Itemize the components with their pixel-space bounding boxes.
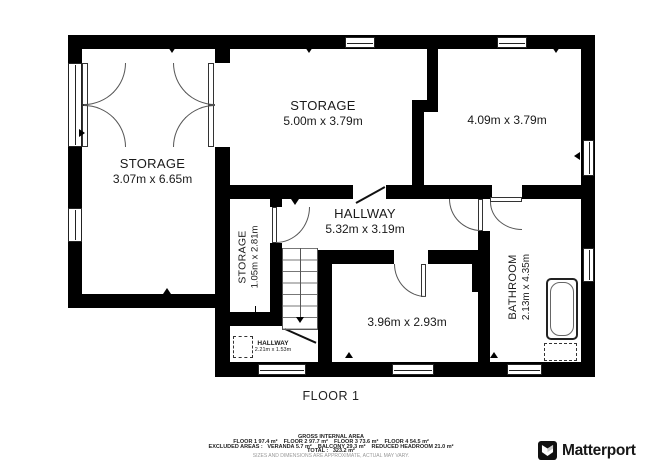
- room-name: STORAGE: [80, 156, 225, 172]
- window: [68, 208, 82, 242]
- wall-closet-right-lower: [270, 243, 282, 312]
- room-label-storage-left: STORAGE 3.07m x 6.65m: [80, 156, 225, 187]
- window: [583, 140, 594, 176]
- door-swing: [449, 199, 481, 231]
- tick-mark: [163, 288, 171, 294]
- room-label-room-bottom: 3.96m x 2.93m: [336, 315, 478, 330]
- room-name: STORAGE: [237, 200, 250, 315]
- wall-hallway-top-a: [230, 185, 353, 199]
- matterport-logo-text: Matterport: [562, 442, 636, 460]
- wall-bathroom-top: [522, 185, 581, 199]
- window: [345, 37, 375, 48]
- room-label-top-right: 4.09m x 3.79m: [432, 113, 582, 128]
- door-swing: [394, 264, 426, 297]
- tick-mark: [291, 199, 299, 205]
- room-label-hallway: HALLWAY 5.32m x 3.19m: [290, 206, 440, 237]
- tick-mark: [490, 352, 498, 358]
- room-dimensions: 2.13m x 4.35m: [521, 227, 534, 347]
- room-name: BATHROOM: [507, 227, 521, 347]
- room-dimensions: 5.32m x 3.19m: [290, 222, 440, 237]
- room-name: HALLWAY: [240, 340, 306, 347]
- room-dimensions: 4.09m x 3.79m: [432, 113, 582, 128]
- door-swing: [84, 105, 126, 147]
- floor-title: FLOOR 1: [231, 389, 431, 403]
- wall-toprooms-divider-b: [412, 100, 424, 199]
- shower-dashed-outline: [544, 343, 577, 361]
- room-dimensions: 2.21m x 1.53m: [240, 347, 306, 353]
- room-dimensions: 1.05m x 2.81m: [250, 200, 262, 315]
- door-swing: [173, 105, 215, 147]
- stair-direction-arrow: [296, 317, 304, 323]
- wall-mid-vertical-upper: [215, 35, 230, 63]
- door-swing: [173, 63, 215, 105]
- bathtub-basin: [550, 282, 574, 336]
- tick-mark: [430, 252, 438, 258]
- room-label-storage-small: STORAGE 1.05m x 2.81m: [237, 200, 265, 315]
- window: [583, 248, 594, 282]
- floor-plan-page: STORAGE 3.07m x 6.65m STORAGE 5.00m x 3.…: [0, 0, 662, 468]
- direction-arrow: [251, 316, 259, 322]
- window: [258, 364, 306, 375]
- room-name: STORAGE: [238, 98, 408, 114]
- room-label-bathroom: BATHROOM 2.13m x 4.35m: [507, 227, 535, 347]
- room-dimensions: 3.96m x 2.93m: [336, 315, 478, 330]
- matterport-logo-icon: [538, 441, 557, 460]
- room-name: HALLWAY: [290, 206, 440, 222]
- room-label-storage-top: STORAGE 5.00m x 3.79m: [238, 98, 408, 129]
- wall-hallway-top-b: [386, 185, 492, 199]
- wall-room-bottom-left: [318, 250, 332, 362]
- staircase-centerline: [300, 248, 301, 321]
- tick-mark: [305, 47, 313, 53]
- room-label-hallway-small: HALLWAY 2.21m x 1.53m: [240, 340, 306, 353]
- tick-mark: [168, 47, 176, 53]
- tick-mark: [345, 352, 353, 358]
- wall-right: [581, 35, 595, 377]
- wall-storage-left-bottom: [68, 294, 230, 308]
- room-dimensions: 5.00m x 3.79m: [238, 114, 408, 129]
- window: [507, 364, 542, 375]
- wall-room-bottom-top-a: [332, 250, 394, 264]
- room-dimensions: 3.07m x 6.65m: [80, 172, 225, 187]
- tick-mark: [79, 129, 85, 137]
- door-swing: [84, 63, 126, 105]
- door-swing: [490, 202, 522, 230]
- window: [497, 37, 527, 48]
- door-leaf: [356, 186, 386, 204]
- tick-mark: [574, 152, 580, 160]
- bathtub: [546, 278, 578, 340]
- wall-closet-right-upper: [270, 199, 282, 207]
- matterport-logo: Matterport: [538, 441, 636, 460]
- tick-mark: [552, 47, 560, 53]
- window: [392, 364, 434, 375]
